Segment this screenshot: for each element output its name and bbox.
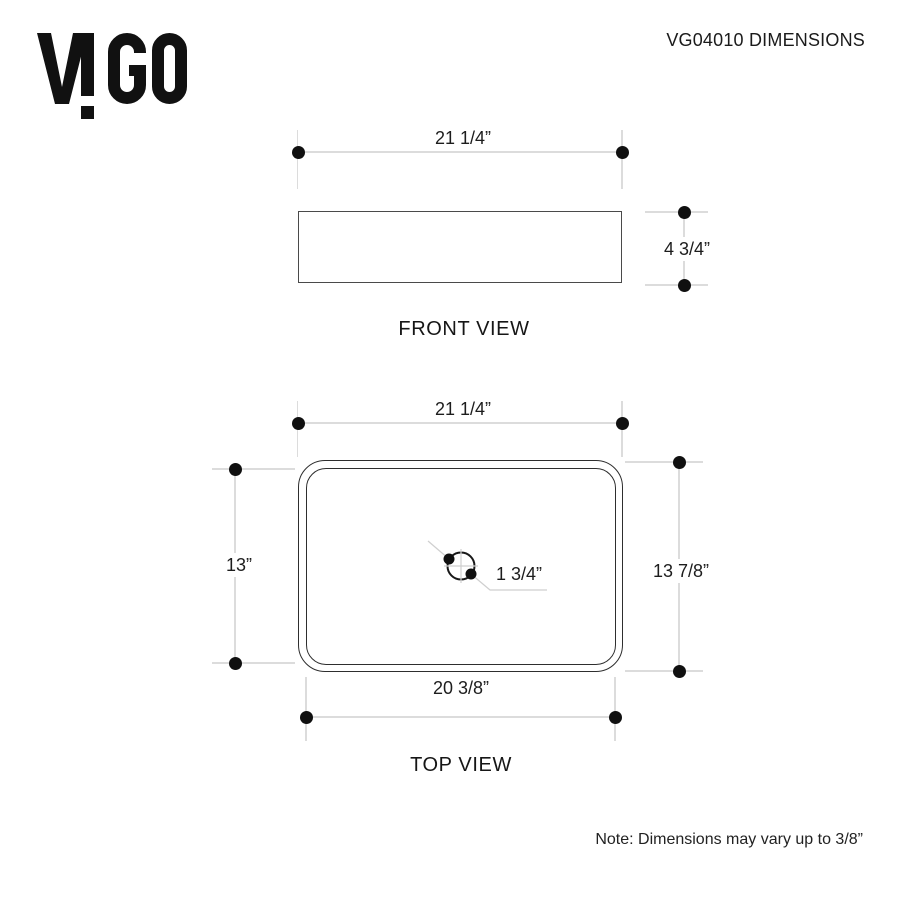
top-inner-height-extension-bottom (212, 662, 295, 664)
logo-letter-g-bar (129, 65, 146, 76)
top-outer-height-dot-bottom (673, 665, 686, 678)
dimension-sheet: VG04010 DIMENSIONS 21 1/4” 4 3/4” FRONT … (0, 0, 900, 900)
dimensions-note: Note: Dimensions may vary up to 3/8” (595, 831, 863, 849)
front-height-extension-top (645, 211, 708, 213)
top-width-dim-label: 21 1/4” (435, 399, 491, 419)
top-inner-height-dot-bottom (229, 657, 242, 670)
top-inner-width-dot-right (609, 711, 622, 724)
top-inner-width-extension-left (305, 677, 307, 741)
top-outer-height-extension-bottom (625, 670, 703, 672)
front-height-dot-top (678, 206, 691, 219)
front-width-extension-right (621, 130, 623, 189)
top-outer-height-dim-label: 13 7/8” (649, 559, 713, 583)
drain-dot-upper (444, 554, 455, 565)
front-view-label: FRONT VIEW (398, 318, 529, 340)
sink-front-outline (298, 211, 622, 283)
top-inner-width-extension-right (614, 677, 616, 741)
logo-letter-o (158, 39, 181, 98)
top-inner-height-extension-top (212, 468, 295, 470)
logo-letter-i-dot (81, 106, 94, 119)
drain-dot-lower (466, 569, 477, 580)
vigo-logo (37, 33, 187, 121)
front-width-dim-line (298, 151, 622, 153)
top-inner-height-dot-top (229, 463, 242, 476)
top-view-label: TOP VIEW (410, 754, 512, 776)
top-inner-height-dim-label: 13” (222, 553, 256, 577)
logo-letter-v (37, 33, 87, 104)
logo-letter-i-stem (81, 33, 94, 96)
front-width-dim-label: 21 1/4” (435, 128, 491, 148)
front-width-extension-left (297, 130, 299, 189)
top-inner-width-dim-line (306, 716, 615, 718)
top-outer-height-dot-top (673, 456, 686, 469)
front-width-dot-left (292, 146, 305, 159)
front-height-extension-bottom (645, 284, 708, 286)
drain-dim-label: 1 3/4” (496, 564, 542, 584)
top-width-dot-left (292, 417, 305, 430)
page-title: VG04010 DIMENSIONS (666, 30, 865, 50)
front-width-dot-right (616, 146, 629, 159)
front-height-dim-label: 4 3/4” (660, 237, 714, 261)
top-inner-width-dot-left (300, 711, 313, 724)
top-inner-width-dim-label: 20 3/8” (433, 678, 489, 698)
top-outer-height-extension-top (625, 461, 703, 463)
front-height-dot-bottom (678, 279, 691, 292)
top-width-dim-line (298, 422, 622, 424)
top-width-dot-right (616, 417, 629, 430)
